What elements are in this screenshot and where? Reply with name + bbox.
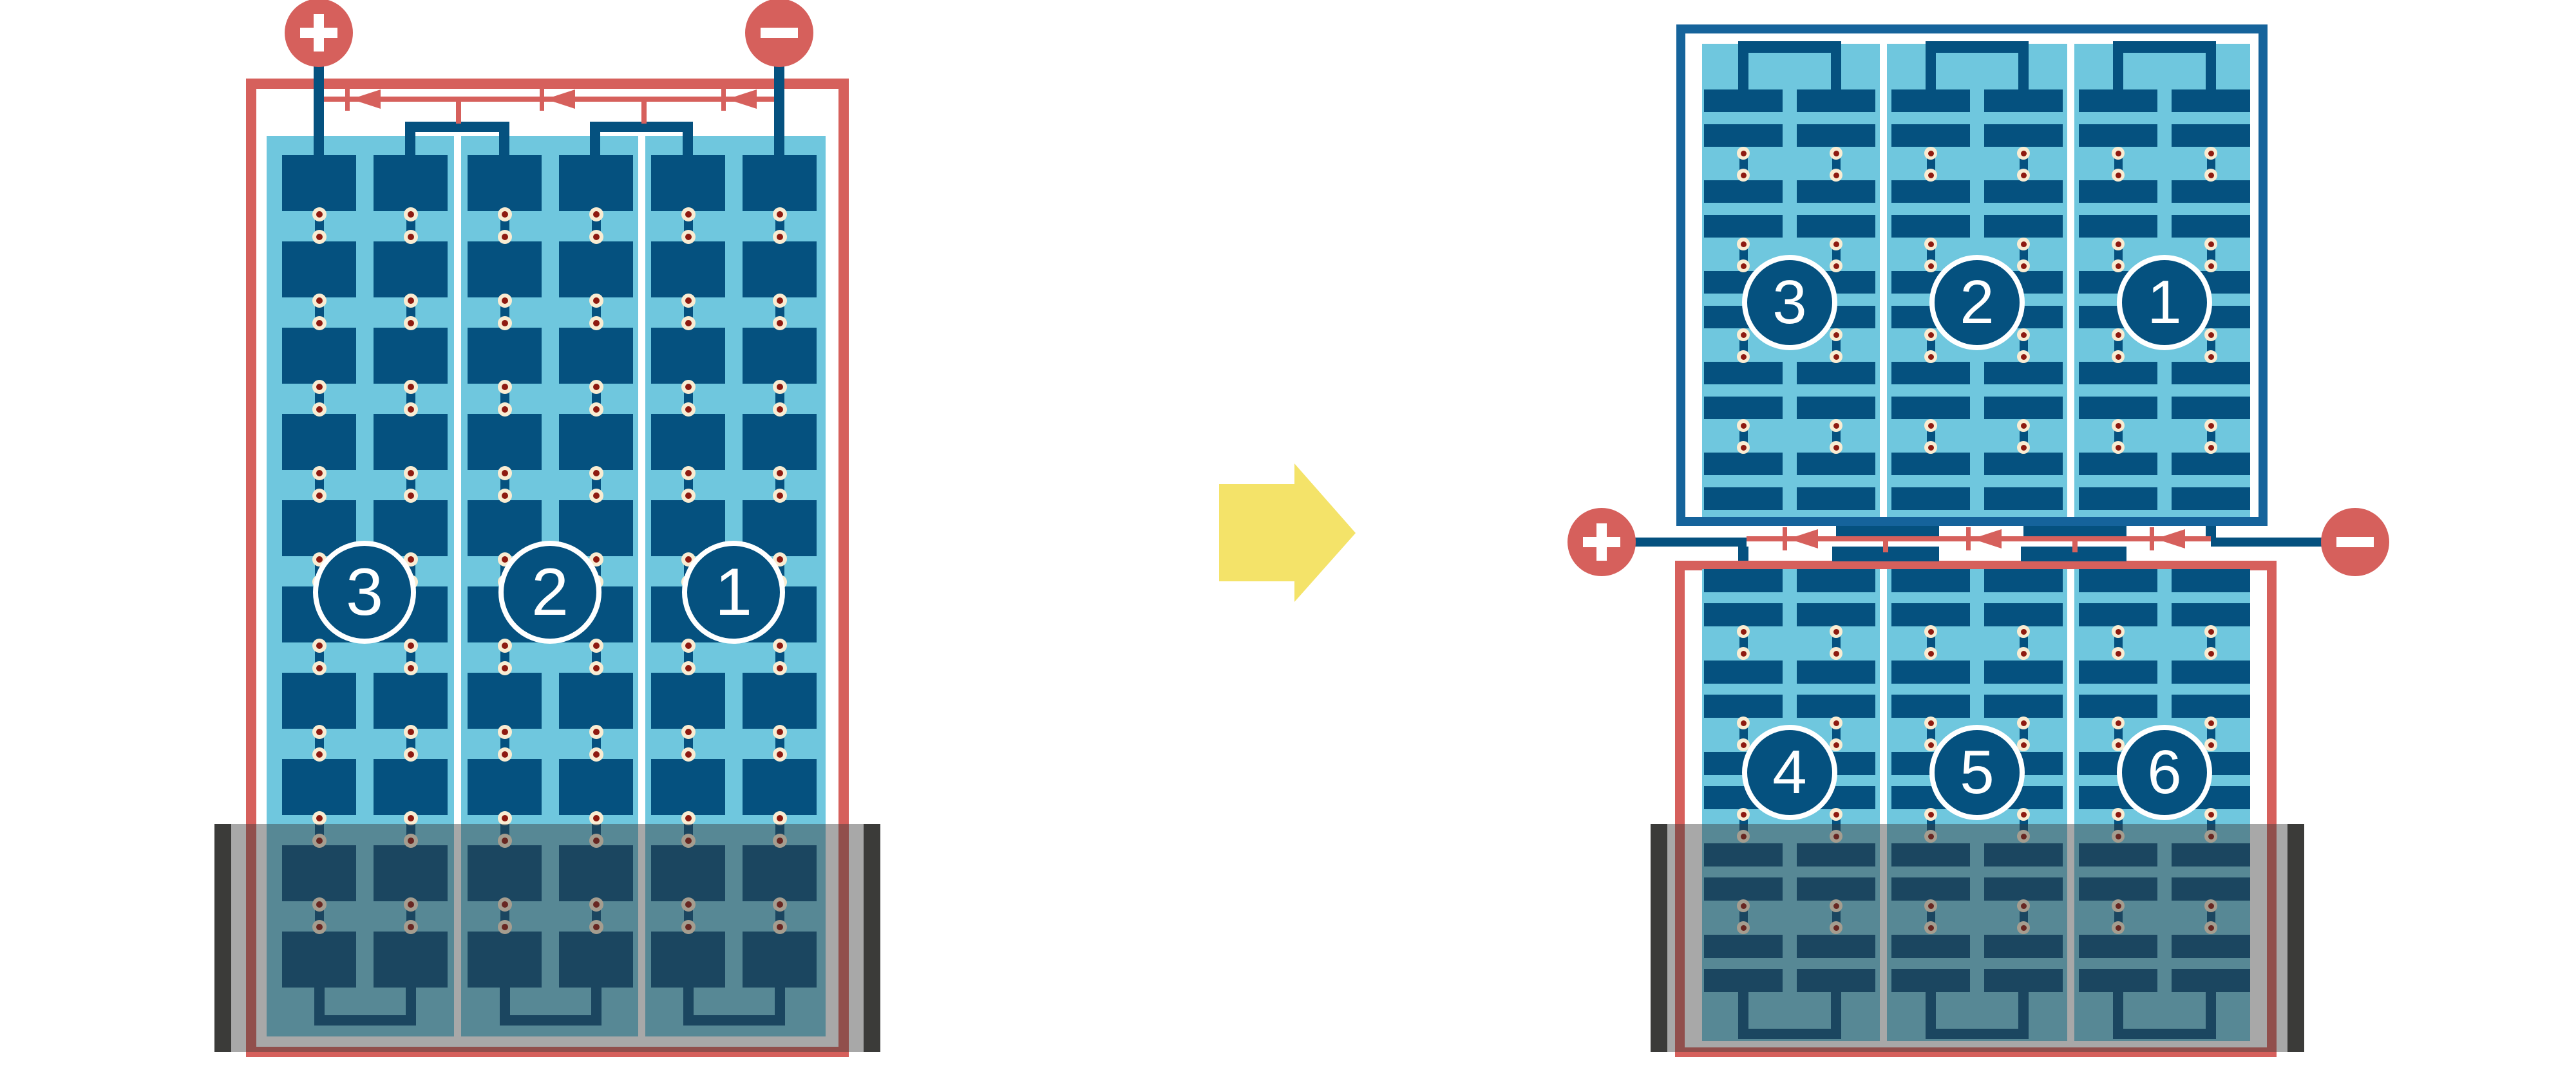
solder-dot-core — [1833, 629, 1839, 635]
solar-cell — [468, 673, 542, 729]
half-cell — [2079, 180, 2157, 203]
right-arrow-head — [1294, 464, 1356, 602]
solder-dot-core — [2208, 651, 2214, 657]
solder-dot-core — [1741, 445, 1747, 451]
solder-dot-core — [502, 470, 508, 476]
half-cell — [2079, 397, 2157, 419]
diode-bus-stub — [456, 102, 461, 124]
solder-dot-core — [502, 211, 508, 218]
solar-cell — [743, 414, 817, 470]
solar-cell — [559, 414, 633, 470]
junction-tab — [1836, 526, 1939, 536]
diode-cathode-bar — [2150, 527, 2154, 550]
half-cell — [2079, 695, 2157, 718]
half-cell — [2079, 215, 2157, 238]
solder-dot-core — [2116, 354, 2121, 360]
solder-dot-core — [685, 234, 692, 240]
half-cell — [1891, 487, 1970, 510]
solar-cell — [743, 328, 817, 384]
string-number-badge: 3 — [313, 541, 416, 644]
half-cell — [2172, 569, 2250, 592]
string-number-badge: 3 — [1742, 255, 1837, 350]
solder-dot-core — [685, 384, 692, 390]
half-cell — [2079, 89, 2157, 112]
half-cell — [2172, 487, 2250, 510]
plus-terminal-glyph — [1596, 523, 1607, 561]
solder-dot-core — [777, 234, 783, 240]
solder-dot-core — [2021, 354, 2027, 360]
solder-dot-core — [777, 815, 783, 821]
solder-dot-core — [1833, 812, 1839, 818]
solder-dot-core — [1833, 354, 1839, 360]
flood-wall-bar — [1651, 824, 1667, 1052]
solder-dot-core — [2116, 720, 2121, 726]
string-number-badge: 4 — [1742, 725, 1837, 820]
half-cell — [2172, 180, 2250, 203]
half-cell — [1704, 569, 1783, 592]
solar-cell — [374, 241, 448, 297]
half-cell — [1797, 89, 1875, 112]
half-cell — [1704, 89, 1783, 112]
string-jumper-leg — [405, 132, 415, 155]
solder-dot-core — [1741, 423, 1747, 429]
solder-dot-core — [502, 492, 508, 499]
solder-dot-core — [2116, 263, 2121, 269]
solder-dot-core — [408, 751, 414, 758]
junction-tab — [2023, 526, 2126, 536]
solder-dot-core — [316, 815, 323, 821]
solar-cell — [651, 759, 725, 815]
solder-dot-core — [777, 320, 783, 326]
solder-dot-core — [1741, 720, 1747, 726]
string-number-badge: 1 — [2117, 255, 2212, 350]
solar-cell — [651, 155, 725, 211]
solder-dot-core — [593, 234, 600, 240]
solder-dot-core — [1833, 423, 1839, 429]
solder-dot-core — [502, 556, 508, 563]
solder-dot-core — [316, 556, 323, 563]
solder-dot-core — [502, 815, 508, 821]
solder-dot-core — [408, 642, 414, 649]
solar-cell — [651, 328, 725, 384]
solder-dot-core — [2116, 241, 2121, 247]
solar-cell — [282, 241, 356, 297]
solder-dot-core — [408, 665, 414, 671]
solar-cell — [559, 673, 633, 729]
solder-dot-core — [502, 729, 508, 735]
solder-dot-core — [316, 492, 323, 499]
half-cell — [1704, 603, 1783, 626]
half-cell — [1797, 660, 1875, 684]
terminal-wire — [1632, 538, 1747, 547]
solder-dot-core — [777, 751, 783, 758]
half-cell — [2172, 453, 2250, 475]
solder-dot-core — [2021, 151, 2027, 156]
solder-dot-core — [1741, 332, 1747, 338]
solder-dot-core — [685, 297, 692, 304]
solder-dot-core — [316, 751, 323, 758]
solar-cell — [743, 673, 817, 729]
string-jumper-leg — [1926, 53, 1936, 89]
solder-dot-core — [777, 665, 783, 671]
string-separator — [2067, 44, 2074, 517]
solder-dot-core — [2208, 332, 2214, 338]
solder-dot-core — [685, 665, 692, 671]
solder-dot-core — [2021, 263, 2027, 269]
diode-bus-stub — [641, 102, 647, 124]
solder-dot-core — [1833, 742, 1839, 748]
minus-terminal-glyph — [761, 28, 798, 38]
solder-dot-core — [777, 492, 783, 499]
solder-dot-core — [2021, 423, 2027, 429]
solder-dot-core — [502, 384, 508, 390]
solar-cell — [282, 759, 356, 815]
diagram-canvas: 321321456 — [0, 0, 2576, 1068]
solder-dot-core — [316, 320, 323, 326]
solder-dot-core — [316, 234, 323, 240]
solder-dot-core — [1928, 173, 1934, 178]
half-cell — [1704, 362, 1783, 384]
flood-wall-bar — [2287, 824, 2304, 1052]
solar-cell — [559, 759, 633, 815]
half-cell — [2172, 695, 2250, 718]
solder-dot-core — [316, 470, 323, 476]
solder-dot-core — [316, 297, 323, 304]
terminal-wire — [314, 63, 324, 155]
solder-dot-core — [1833, 720, 1839, 726]
half-cell — [1984, 124, 2063, 147]
solder-dot-core — [777, 470, 783, 476]
solar-cell — [282, 414, 356, 470]
solder-dot-core — [593, 384, 600, 390]
flood-wall-bar — [214, 824, 231, 1052]
half-cell — [1891, 453, 1970, 475]
solder-dot-core — [316, 642, 323, 649]
solar-cell — [559, 155, 633, 211]
flood-wall-bar — [864, 824, 880, 1052]
solder-dot-core — [2021, 629, 2027, 635]
string-jumper-leg — [2018, 53, 2029, 89]
solder-dot-core — [685, 320, 692, 326]
solder-dot-core — [502, 642, 508, 649]
solder-dot-core — [1741, 742, 1747, 748]
solder-dot-core — [1928, 651, 1934, 657]
solder-dot-core — [408, 320, 414, 326]
solar-cell — [743, 759, 817, 815]
half-cell — [2079, 660, 2157, 684]
solder-dot-core — [1928, 720, 1934, 726]
string-jumper-leg — [2206, 53, 2216, 89]
half-cell — [2079, 453, 2157, 475]
solder-dot-core — [408, 234, 414, 240]
half-cell — [1797, 695, 1875, 718]
diode-icon — [351, 89, 381, 109]
solar-cell — [374, 673, 448, 729]
solder-dot-core — [502, 406, 508, 413]
half-cell — [1891, 695, 1970, 718]
solder-dot-core — [685, 815, 692, 821]
solder-dot-core — [408, 297, 414, 304]
solar-cell — [468, 155, 542, 211]
solder-dot-core — [1928, 241, 1934, 247]
half-cell — [1984, 695, 2063, 718]
half-cell — [1984, 487, 2063, 510]
half-cell — [2172, 124, 2250, 147]
solar-cell — [743, 155, 817, 211]
solder-dot-core — [1928, 423, 1934, 429]
solder-dot-core — [408, 815, 414, 821]
solder-dot-core — [593, 729, 600, 735]
half-cell — [2079, 362, 2157, 384]
solar-cell — [468, 759, 542, 815]
solder-dot-core — [1928, 263, 1934, 269]
solder-dot-core — [1928, 812, 1934, 818]
solder-dot-core — [685, 406, 692, 413]
string-jumper-leg — [590, 132, 600, 155]
string-separator — [1880, 44, 1887, 517]
solar-cell — [651, 414, 725, 470]
diode-bus-stub — [2072, 541, 2078, 552]
solder-dot-core — [2208, 629, 2214, 635]
solder-dot-core — [316, 406, 323, 413]
solder-dot-core — [2116, 423, 2121, 429]
solder-dot-core — [777, 642, 783, 649]
solder-dot-core — [316, 665, 323, 671]
solder-dot-core — [593, 211, 600, 218]
half-cell — [1797, 603, 1875, 626]
solder-dot-core — [2208, 173, 2214, 178]
half-cell — [2172, 603, 2250, 626]
solder-dot-core — [502, 320, 508, 326]
half-cell — [1797, 124, 1875, 147]
half-cell — [1704, 215, 1783, 238]
solar-cell — [559, 328, 633, 384]
solder-dot-core — [2021, 742, 2027, 748]
solder-dot-core — [2116, 173, 2121, 178]
minus-terminal-glyph — [2336, 537, 2374, 547]
half-cell — [1891, 569, 1970, 592]
solder-dot-core — [2021, 812, 2027, 818]
solder-dot-core — [685, 211, 692, 218]
solder-dot-core — [502, 297, 508, 304]
terminal-wire — [1738, 547, 1748, 561]
solder-dot-core — [2208, 720, 2214, 726]
solder-dot-core — [685, 556, 692, 563]
solar-cell — [559, 241, 633, 297]
solar-cell — [743, 241, 817, 297]
half-cell — [1891, 397, 1970, 419]
diode-cathode-bar — [540, 88, 544, 111]
solder-dot-core — [316, 729, 323, 735]
half-cell — [1797, 453, 1875, 475]
solder-dot-core — [2021, 173, 2027, 178]
string-jumper-leg — [1738, 53, 1748, 89]
solder-dot-core — [777, 729, 783, 735]
half-cell — [1797, 397, 1875, 419]
solder-dot-core — [316, 384, 323, 390]
solar-cell — [374, 759, 448, 815]
half-cell — [1984, 397, 2063, 419]
solder-dot-core — [1741, 263, 1747, 269]
string-number-badge: 1 — [682, 541, 785, 644]
right-arrow-icon — [1219, 484, 1294, 581]
solder-dot-core — [1833, 151, 1839, 156]
solder-dot-core — [593, 320, 600, 326]
half-cell — [2079, 487, 2157, 510]
solder-dot-core — [2116, 445, 2121, 451]
half-cell — [1797, 362, 1875, 384]
half-cell — [2172, 89, 2250, 112]
solar-cell — [468, 414, 542, 470]
half-cell — [1891, 89, 1970, 112]
half-cell — [1797, 215, 1875, 238]
solder-dot-core — [408, 492, 414, 499]
half-cell — [1704, 660, 1783, 684]
half-cell — [1891, 660, 1970, 684]
solar-cell — [468, 328, 542, 384]
solder-dot-core — [316, 211, 323, 218]
solder-dot-core — [502, 751, 508, 758]
solder-dot-core — [1741, 173, 1747, 178]
terminal-wire — [2211, 538, 2325, 547]
half-cell — [1984, 89, 2063, 112]
solder-dot-core — [2208, 742, 2214, 748]
half-cell — [2172, 215, 2250, 238]
diode-cathode-bar — [721, 88, 726, 111]
half-cell — [1704, 180, 1783, 203]
half-cell — [1984, 660, 2063, 684]
solder-dot-core — [2021, 445, 2027, 451]
half-cell — [1891, 124, 1970, 147]
half-cell — [1704, 487, 1783, 510]
solder-dot-core — [777, 297, 783, 304]
diode-cathode-bar — [1966, 527, 1971, 550]
string-number-badge: 6 — [2117, 725, 2212, 820]
solder-dot-core — [2116, 742, 2121, 748]
solder-dot-core — [593, 470, 600, 476]
string-jumper-bar — [1926, 41, 2029, 53]
solder-dot-core — [2116, 812, 2121, 818]
half-cell — [2172, 362, 2250, 384]
solder-dot-core — [1833, 332, 1839, 338]
solder-dot-core — [1928, 332, 1934, 338]
half-cell — [1891, 603, 1970, 626]
diode-icon — [1788, 529, 1818, 548]
half-cell — [2079, 124, 2157, 147]
half-cell — [1797, 569, 1875, 592]
solder-dot-core — [408, 729, 414, 735]
solder-dot-core — [777, 211, 783, 218]
solar-cell — [282, 673, 356, 729]
half-cell — [1984, 215, 2063, 238]
solar-cell — [374, 414, 448, 470]
solder-dot-core — [1928, 151, 1934, 156]
solder-dot-core — [408, 470, 414, 476]
solder-dot-core — [1741, 651, 1747, 657]
solder-dot-core — [685, 470, 692, 476]
half-cell — [1704, 397, 1783, 419]
half-cell — [1984, 603, 2063, 626]
solder-dot-core — [2208, 151, 2214, 156]
half-cell — [1704, 695, 1783, 718]
string-number-badge: 2 — [498, 541, 601, 644]
solder-dot-core — [593, 642, 600, 649]
solder-dot-core — [777, 406, 783, 413]
solder-dot-core — [593, 297, 600, 304]
solar-cell — [282, 155, 356, 211]
half-cell — [2079, 569, 2157, 592]
solder-dot-core — [2116, 332, 2121, 338]
solder-dot-core — [2116, 629, 2121, 635]
solder-dot-core — [2208, 263, 2214, 269]
diode-bus-stub — [1883, 541, 1888, 552]
solder-dot-core — [2021, 651, 2027, 657]
solder-dot-core — [1741, 812, 1747, 818]
solder-dot-core — [2021, 332, 2027, 338]
string-jumper-bar — [1738, 41, 1841, 53]
solar-cell — [282, 328, 356, 384]
solder-dot-core — [2208, 241, 2214, 247]
solder-dot-core — [593, 556, 600, 563]
half-cell — [1704, 453, 1783, 475]
half-cell — [2172, 660, 2250, 684]
diode-icon — [1972, 529, 2002, 548]
solder-dot-core — [2208, 354, 2214, 360]
half-cell — [1797, 180, 1875, 203]
half-cell — [1704, 124, 1783, 147]
solar-cell — [651, 673, 725, 729]
solar-cell — [651, 241, 725, 297]
half-cell — [1891, 215, 1970, 238]
diode-cathode-bar — [1783, 527, 1787, 550]
solder-dot-core — [502, 665, 508, 671]
solder-dot-core — [1741, 629, 1747, 635]
diode-icon — [2155, 529, 2185, 548]
string-number-badge: 2 — [1929, 255, 2025, 350]
solder-dot-core — [1928, 354, 1934, 360]
string-jumper-leg — [2113, 53, 2123, 89]
string-jumper-bar — [2113, 41, 2216, 53]
solder-dot-core — [1928, 445, 1934, 451]
half-cell — [1984, 362, 2063, 384]
diode-cathode-bar — [345, 88, 350, 111]
solder-dot-core — [408, 384, 414, 390]
string-jumper-leg — [499, 132, 509, 155]
diode-icon — [727, 89, 757, 109]
string-jumper-leg — [1831, 53, 1841, 89]
string-jumper-leg — [683, 132, 693, 155]
half-cell — [1797, 487, 1875, 510]
solder-dot-core — [1928, 742, 1934, 748]
solder-dot-core — [593, 751, 600, 758]
half-cell — [2172, 397, 2250, 419]
solder-dot-core — [2021, 241, 2027, 247]
solder-dot-core — [685, 642, 692, 649]
solder-dot-core — [408, 556, 414, 563]
solder-dot-core — [1741, 151, 1747, 156]
half-cell — [1984, 453, 2063, 475]
terminal-wire — [774, 63, 784, 155]
solder-dot-core — [685, 751, 692, 758]
solder-dot-core — [1928, 629, 1934, 635]
solder-dot-core — [777, 556, 783, 563]
solder-dot-core — [685, 729, 692, 735]
solder-dot-core — [777, 384, 783, 390]
solder-dot-core — [1833, 263, 1839, 269]
half-cell — [1891, 362, 1970, 384]
solder-dot-core — [2116, 651, 2121, 657]
solder-dot-core — [685, 492, 692, 499]
